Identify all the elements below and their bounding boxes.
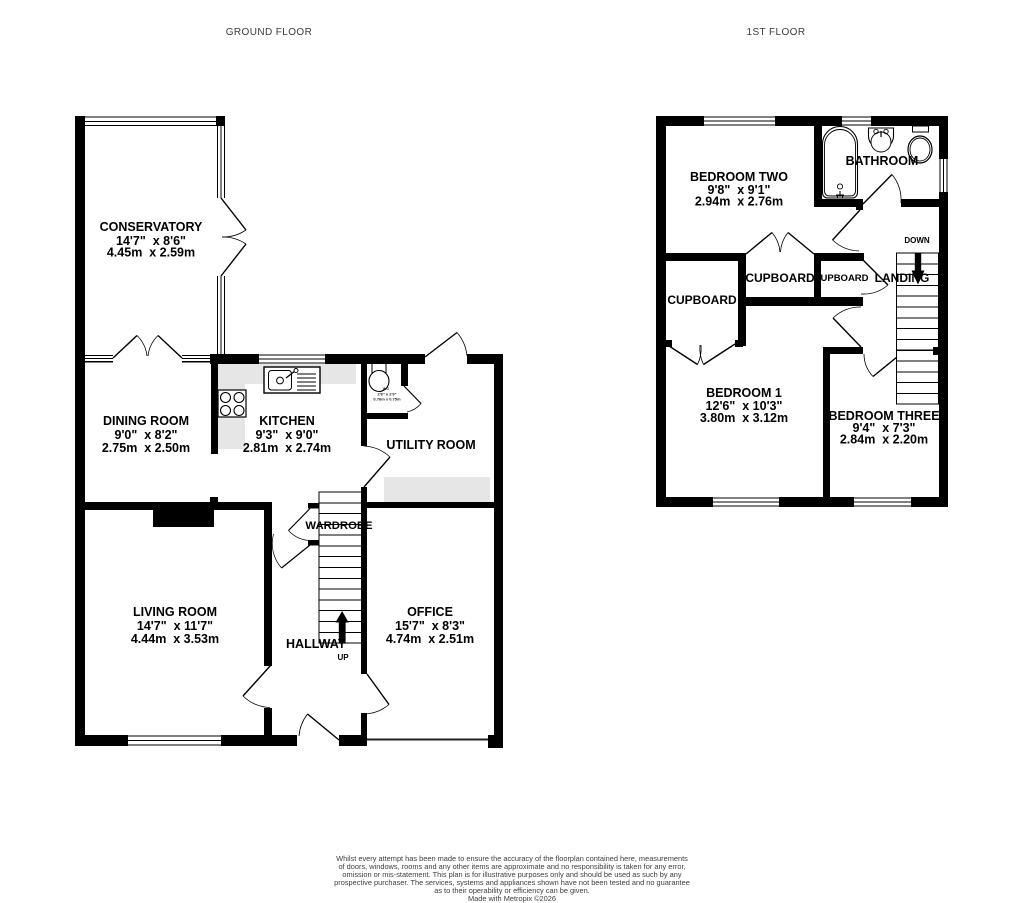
svg-text:WC: WC	[383, 386, 390, 391]
svg-text:4.44m x 3.53m: 4.44m x 3.53m	[131, 632, 219, 646]
svg-text:UPBOARD: UPBOARD	[821, 273, 869, 284]
svg-text:BATHROOM: BATHROOM	[846, 154, 919, 168]
svg-text:CUPBOARD: CUPBOARD	[667, 293, 737, 307]
svg-text:4.45m x 2.59m: 4.45m x 2.59m	[107, 246, 195, 260]
svg-text:CONSERVATORY: CONSERVATORY	[100, 220, 203, 234]
svg-text:4.74m x 2.51m: 4.74m x 2.51m	[386, 632, 474, 646]
svg-text:BEDROOM 1: BEDROOM 1	[706, 386, 782, 400]
svg-text:HALLWAY: HALLWAY	[286, 637, 347, 651]
svg-text:UTILITY ROOM: UTILITY ROOM	[386, 438, 475, 452]
svg-text:DOWN: DOWN	[904, 236, 930, 245]
svg-text:14'7" x 11'7": 14'7" x 11'7"	[137, 619, 213, 633]
svg-text:2.94m x 2.76m: 2.94m x 2.76m	[695, 195, 783, 209]
svg-text:2.81m x 2.74m: 2.81m x 2.74m	[243, 441, 331, 455]
svg-text:BEDROOM TWO: BEDROOM TWO	[690, 170, 788, 184]
svg-text:OFFICE: OFFICE	[407, 605, 453, 619]
svg-text:Made with Metropix ©2026: Made with Metropix ©2026	[468, 894, 556, 903]
svg-text:DINING ROOM: DINING ROOM	[103, 414, 189, 428]
svg-text:9'3" x 9'0": 9'3" x 9'0"	[256, 428, 319, 442]
svg-text:15'7" x 8'3": 15'7" x 8'3"	[395, 619, 465, 633]
svg-text:3.80m x 3.12m: 3.80m x 3.12m	[700, 411, 788, 425]
svg-text:GROUND FLOOR: GROUND FLOOR	[226, 27, 312, 38]
svg-text:2.75m x 2.50m: 2.75m x 2.50m	[102, 441, 190, 455]
svg-text:LIVING ROOM: LIVING ROOM	[133, 605, 217, 619]
svg-text:1ST FLOOR: 1ST FLOOR	[747, 27, 806, 38]
svg-text:2.84m x 2.20m: 2.84m x 2.20m	[840, 433, 928, 447]
svg-text:0.76m x 0.75m: 0.76m x 0.75m	[373, 397, 401, 402]
svg-text:CUPBOARD: CUPBOARD	[745, 271, 815, 285]
svg-text:KITCHEN: KITCHEN	[259, 414, 315, 428]
svg-text:9'0" x 8'2": 9'0" x 8'2"	[115, 428, 178, 442]
svg-text:UP: UP	[337, 653, 349, 662]
